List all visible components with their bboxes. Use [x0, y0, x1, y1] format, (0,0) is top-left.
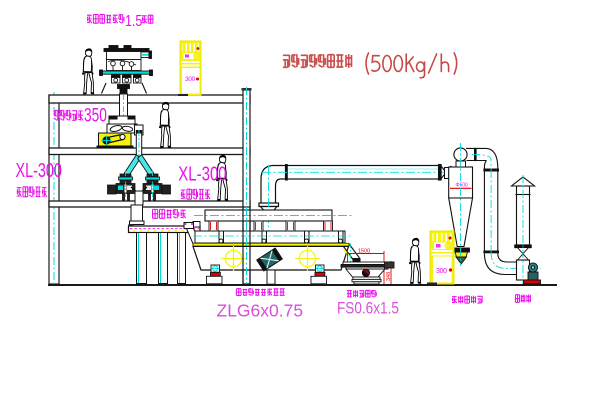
svg-text:ZLG6x0.75: ZLG6x0.75	[217, 301, 304, 321]
svg-text:350: 350	[84, 104, 107, 126]
svg-text:300: 300	[185, 76, 196, 83]
svg-text:FS0.6x1.5: FS0.6x1.5	[337, 299, 399, 318]
svg-text:XL-300: XL-300	[178, 162, 226, 185]
svg-text:348: 348	[386, 272, 392, 281]
svg-text:1.5: 1.5	[125, 12, 142, 30]
svg-text:Φ500: Φ500	[456, 183, 469, 189]
svg-text:1500: 1500	[358, 249, 370, 255]
svg-text:300: 300	[436, 268, 447, 275]
svg-text:XL-300: XL-300	[16, 159, 62, 182]
